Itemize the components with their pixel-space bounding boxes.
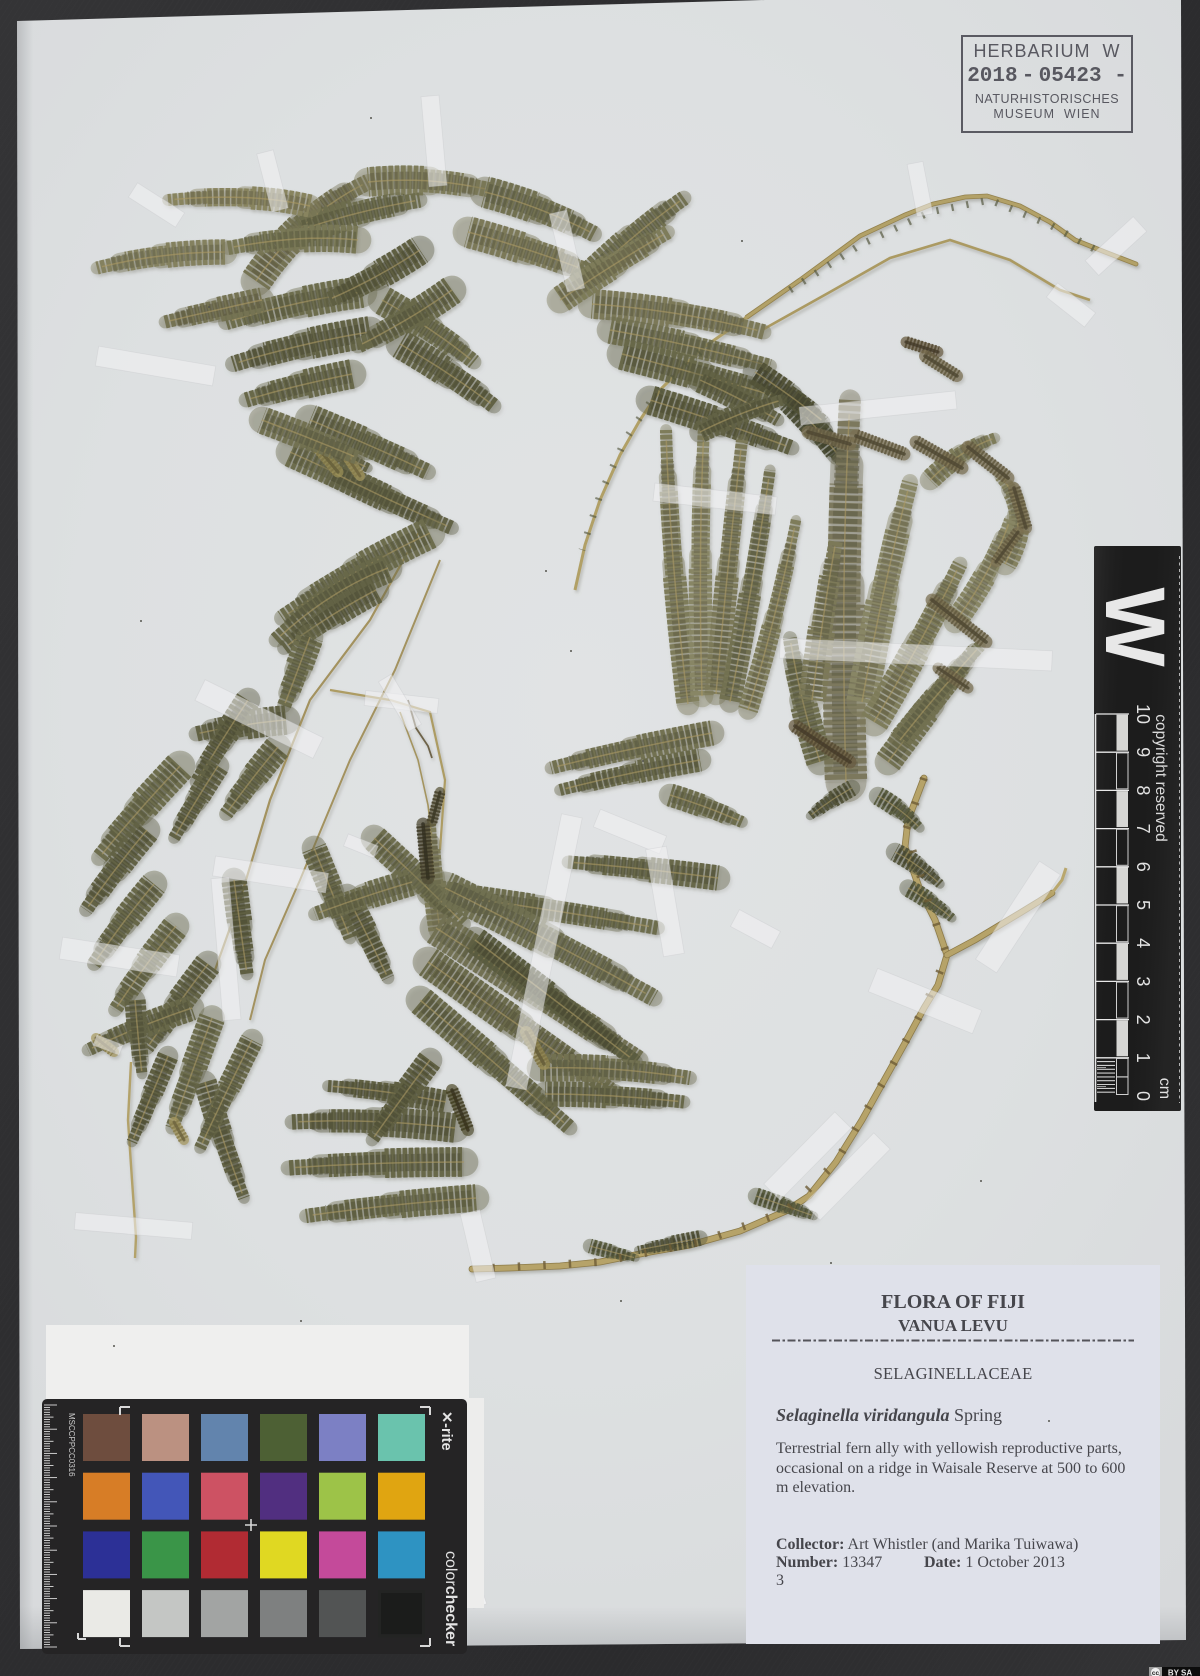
- svg-text:cc: cc: [1152, 1670, 1160, 1676]
- svg-text:MSCCPPCC0316: MSCCPPCC0316: [67, 1413, 76, 1477]
- svg-text:9: 9: [1133, 747, 1153, 757]
- svg-text:2: 2: [1133, 1015, 1153, 1025]
- svg-text:5: 5: [1133, 900, 1153, 910]
- svg-text:1: 1: [1133, 1053, 1153, 1063]
- svg-text:10: 10: [1133, 704, 1153, 724]
- svg-text:BY SA: BY SA: [1168, 1669, 1193, 1676]
- svg-text:4: 4: [1133, 938, 1153, 948]
- svg-text:copyright reserved: copyright reserved: [1152, 714, 1169, 842]
- svg-text:W: W: [1094, 587, 1181, 667]
- svg-text:colorchecker: colorchecker: [442, 1551, 459, 1646]
- svg-text:cm: cm: [1156, 1078, 1173, 1099]
- svg-text:7: 7: [1133, 824, 1153, 834]
- svg-text:6: 6: [1133, 862, 1153, 872]
- svg-text:3: 3: [1133, 976, 1153, 986]
- svg-text:✕-rite: ✕-rite: [438, 1411, 454, 1451]
- svg-text:0: 0: [1133, 1091, 1153, 1101]
- svg-text:8: 8: [1133, 785, 1153, 795]
